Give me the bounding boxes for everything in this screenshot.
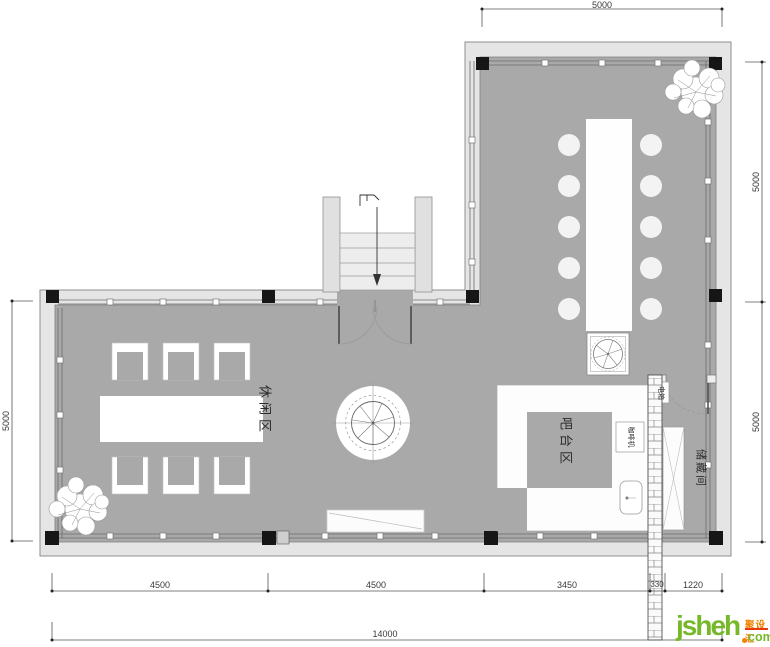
stairs xyxy=(323,195,432,292)
dim-top: 5000 xyxy=(580,0,624,10)
label-bar-area: 吧台区 xyxy=(559,415,574,471)
storage-shelf xyxy=(663,427,684,530)
dim-left: 5000 xyxy=(1,399,11,443)
logo-dot-icon xyxy=(742,638,747,643)
logo-tld: com xyxy=(748,631,770,644)
dim-right-lower: 5000 xyxy=(751,400,761,444)
label-leisure-area: 休闲区 xyxy=(258,383,273,439)
dim-bottom-330: 330 xyxy=(645,580,669,590)
stair-direction-mark xyxy=(360,195,379,206)
logo-wordmark: jsheh xyxy=(676,612,739,640)
tile-wall-strip xyxy=(648,375,662,640)
dim-bottom-total: 14000 xyxy=(363,629,407,639)
dim-bottom-4500-1: 4500 xyxy=(138,580,182,590)
label-storage-room: 储藏间 xyxy=(693,445,708,493)
leisure-table xyxy=(100,396,263,442)
floor-plan-drawing xyxy=(0,0,770,647)
dim-bottom-1220: 1220 xyxy=(671,580,715,590)
floor-plan-page: 5000 5000 5000 5000 4500 4500 3450 330 1… xyxy=(0,0,770,647)
dim-bottom-3450: 3450 xyxy=(545,580,589,590)
label-electric-box: 电箱 xyxy=(656,384,664,402)
site-logo: jsheh 聚设汇 com xyxy=(663,606,770,647)
dim-bottom-4500-2: 4500 xyxy=(354,580,398,590)
fan-box xyxy=(587,333,629,375)
label-coffee-machine: 咖啡机 xyxy=(626,425,634,449)
dim-right-upper: 5000 xyxy=(751,160,761,204)
sink xyxy=(620,481,642,514)
bench xyxy=(327,510,424,532)
